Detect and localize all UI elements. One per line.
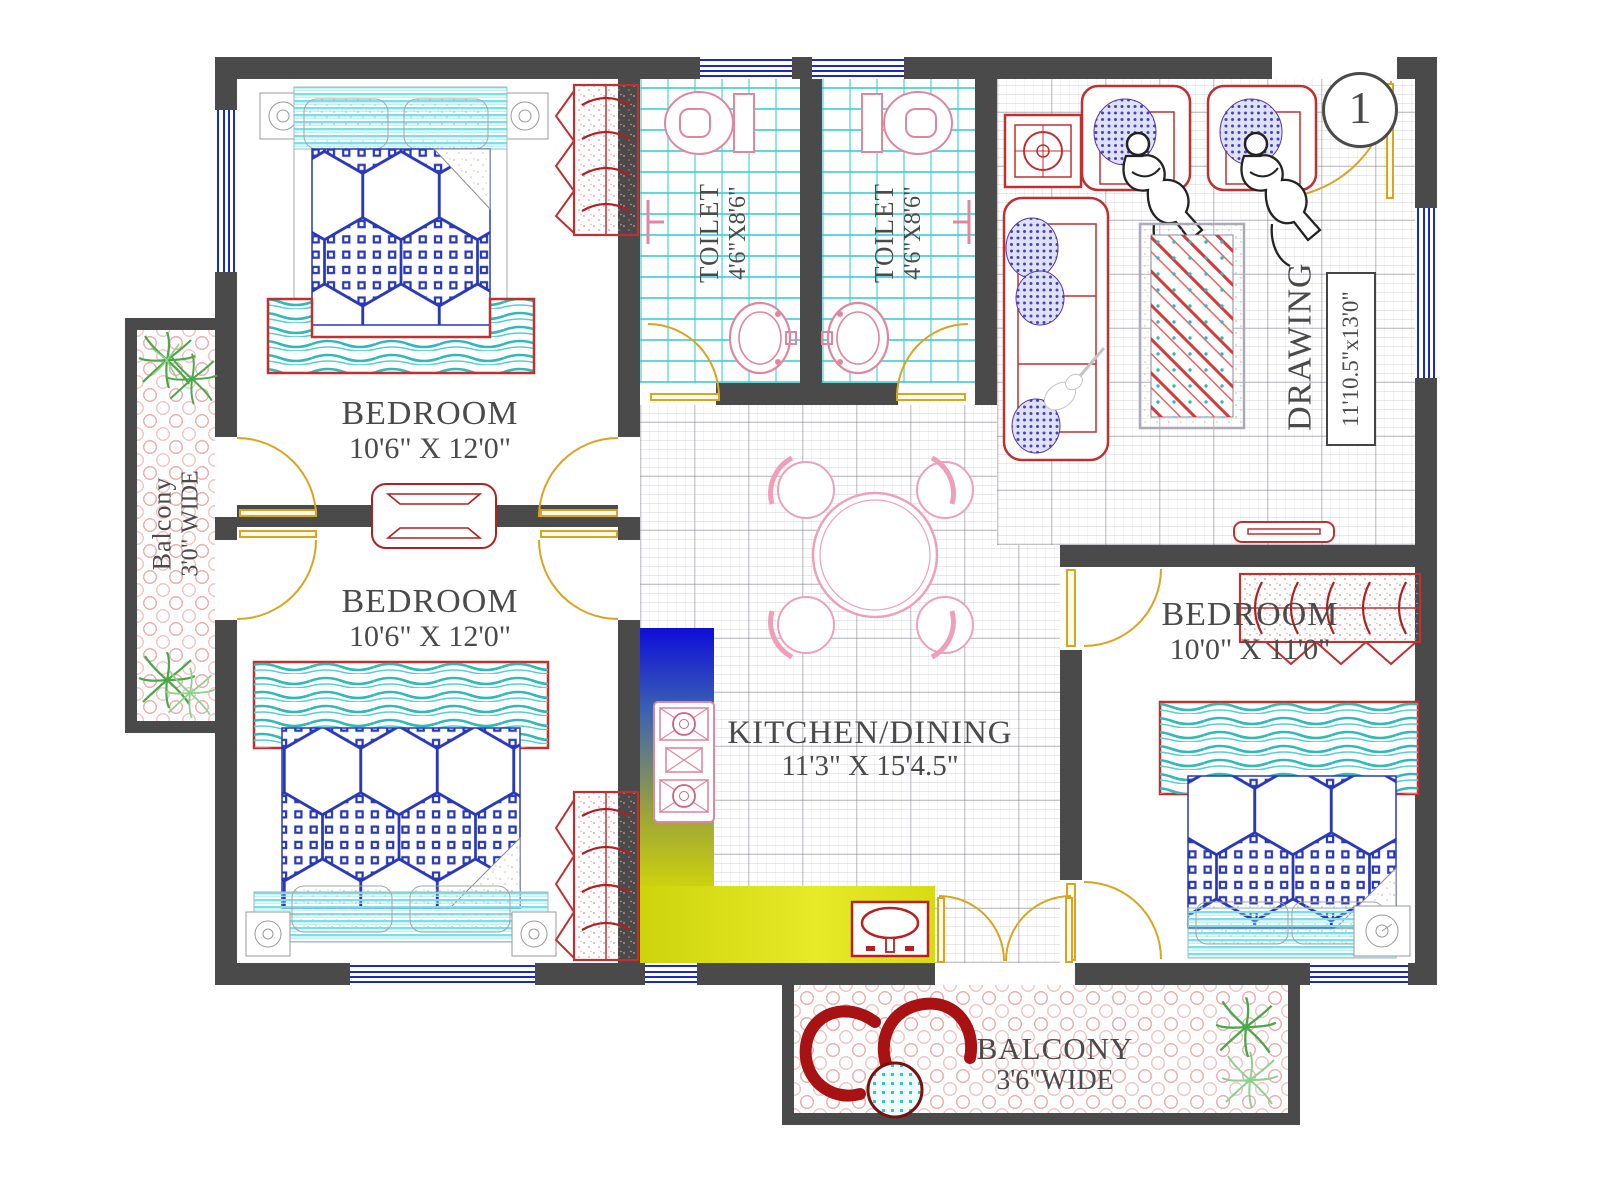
door-leaf bbox=[1065, 897, 1073, 963]
plant bbox=[165, 352, 219, 406]
wall bbox=[215, 57, 237, 110]
balcony-wall bbox=[125, 721, 215, 733]
wall bbox=[1075, 963, 1310, 985]
room-dims: 10'6" X 12'0" bbox=[280, 432, 580, 465]
tv-unit bbox=[1002, 112, 1084, 190]
room-name: KITCHEN/DINING bbox=[690, 715, 1050, 751]
wardrobe bbox=[552, 83, 640, 237]
window bbox=[1415, 208, 1437, 378]
door-leaf bbox=[239, 530, 317, 538]
wall bbox=[1060, 650, 1082, 880]
bed bbox=[246, 660, 556, 962]
window bbox=[645, 963, 697, 985]
room-label-bedroom-top-left: BEDROOM 10'6" X 12'0" bbox=[280, 395, 580, 465]
room-dims: 4'6"X8'6" bbox=[900, 153, 926, 313]
room-label-bedroom-mid-left: BEDROOM 10'6" X 12'0" bbox=[280, 583, 580, 653]
wall bbox=[1415, 57, 1437, 208]
door-leaf bbox=[650, 393, 720, 401]
room-name: BEDROOM bbox=[280, 583, 580, 620]
wall bbox=[975, 79, 997, 405]
door-leaf bbox=[239, 509, 317, 517]
unit-number-badge: 1 bbox=[1322, 72, 1398, 148]
plant bbox=[163, 666, 217, 720]
wall bbox=[716, 383, 898, 405]
wall bbox=[697, 963, 935, 985]
wall bbox=[215, 517, 237, 540]
room-name: TOILET bbox=[695, 153, 725, 313]
room-dims: 3'0" WIDE bbox=[177, 443, 203, 603]
room-name: TOILET bbox=[870, 153, 900, 313]
plant bbox=[1220, 1050, 1280, 1110]
bed bbox=[248, 85, 553, 375]
room-dims: 3'6"WIDE bbox=[905, 1066, 1205, 1097]
wall bbox=[904, 57, 1272, 79]
room-name: BEDROOM bbox=[1095, 596, 1405, 633]
dressing-table bbox=[370, 478, 498, 554]
room-label-balcony-left: Balcony 3'0" WIDE bbox=[149, 443, 204, 603]
room-dims: 10'0" X 11'0" bbox=[1095, 633, 1405, 666]
door-leaf bbox=[540, 509, 618, 517]
balcony-wall bbox=[125, 318, 137, 733]
room-label-toilet-left: TOILET 4'6"X8'6" bbox=[695, 153, 751, 313]
sofa bbox=[1002, 196, 1112, 464]
kitchen-sink bbox=[850, 900, 930, 958]
room-dims: 11'10.5"x13'0" bbox=[1338, 291, 1363, 426]
window bbox=[215, 110, 237, 272]
wall bbox=[215, 620, 237, 985]
room-label-kitchen-dining: KITCHEN/DINING 11'3" X 15'4.5" bbox=[690, 715, 1050, 783]
door-leaf bbox=[896, 393, 966, 401]
room-name: Balcony bbox=[149, 443, 178, 603]
balcony-wall bbox=[125, 318, 215, 330]
wall bbox=[1060, 545, 1415, 567]
dining-set bbox=[762, 452, 962, 658]
room-label-toilet-right: TOILET 4'6"X8'6" bbox=[870, 153, 926, 313]
room-label-bedroom-right: BEDROOM 10'0" X 11'0" bbox=[1095, 596, 1405, 666]
window bbox=[812, 57, 904, 79]
wall bbox=[215, 57, 700, 79]
door-leaf bbox=[1066, 569, 1076, 647]
wall bbox=[800, 79, 822, 383]
room-name: DRAWING bbox=[1281, 257, 1318, 437]
floor-plan: BEDROOM 10'6" X 12'0" BEDROOM 10'6" X 12… bbox=[0, 0, 1600, 1200]
drawing-dims-box: 11'10.5"x13'0" bbox=[1326, 272, 1376, 446]
wall bbox=[618, 517, 640, 540]
wardrobe bbox=[552, 790, 640, 962]
door-leaf bbox=[937, 897, 945, 963]
bed bbox=[1140, 700, 1420, 962]
door-leaf bbox=[540, 530, 618, 538]
room-label-balcony-bottom: BALCONY 3'6"WIDE bbox=[905, 1032, 1205, 1097]
wall bbox=[535, 963, 645, 985]
unit-number: 1 bbox=[1349, 82, 1372, 133]
window bbox=[700, 57, 792, 79]
wall-shelf bbox=[1232, 520, 1336, 546]
room-dims: 10'6" X 12'0" bbox=[280, 620, 580, 653]
room-dims: 11'3" X 15'4.5" bbox=[690, 751, 1050, 783]
wall bbox=[792, 57, 812, 79]
window bbox=[350, 963, 535, 985]
window bbox=[1310, 963, 1408, 985]
room-dims: 4'6"X8'6" bbox=[725, 153, 751, 313]
rug bbox=[1138, 222, 1246, 430]
room-label-drawing: DRAWING bbox=[1281, 257, 1318, 437]
balcony-wall bbox=[1288, 985, 1300, 1125]
room-name: BEDROOM bbox=[280, 395, 580, 432]
room-name: BALCONY bbox=[905, 1032, 1205, 1066]
